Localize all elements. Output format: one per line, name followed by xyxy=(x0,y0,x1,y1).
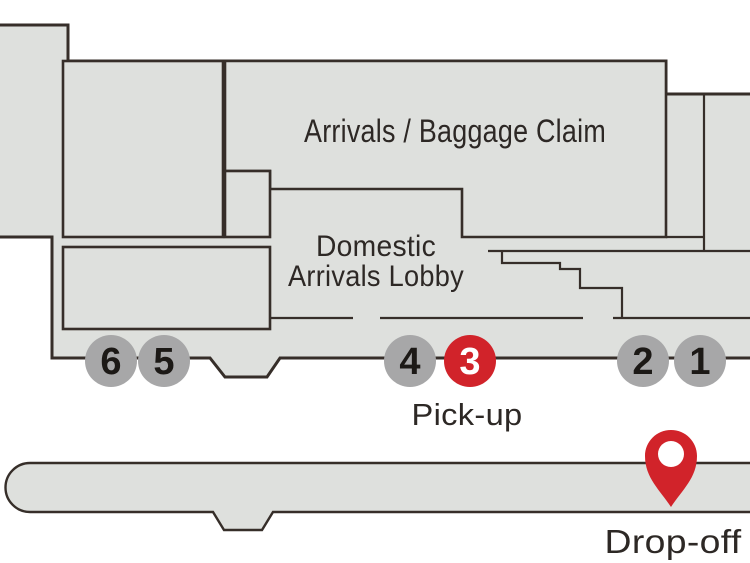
airport-terminal-map: Arrivals / Baggage Claim Domestic Arriva… xyxy=(0,0,750,563)
room-upper-left xyxy=(63,61,223,237)
pin-hole xyxy=(658,441,684,467)
dropoff-label: Drop-off xyxy=(605,523,743,560)
stop-6-number: 6 xyxy=(100,341,121,383)
stop-4: 4 xyxy=(384,335,436,387)
lobby-label-line-1: Domestic xyxy=(316,230,436,263)
lobby-label-line-2: Arrivals Lobby xyxy=(288,260,464,293)
stop-1: 1 xyxy=(674,335,726,387)
stop-2: 2 xyxy=(617,335,669,387)
stop-6: 6 xyxy=(85,335,137,387)
stop-1-number: 1 xyxy=(689,341,710,383)
baggage-claim-label: Arrivals / Baggage Claim xyxy=(304,113,606,149)
pickup-label: Pick-up xyxy=(412,397,523,432)
stop-3-pickup: 3 xyxy=(444,335,496,387)
stop-5: 5 xyxy=(138,335,190,387)
stop-5-number: 5 xyxy=(153,341,174,383)
room-small-annex xyxy=(225,171,270,237)
room-lower-left xyxy=(63,247,270,329)
airport-terminal-map-page: Arrivals / Baggage Claim Domestic Arriva… xyxy=(0,0,750,563)
roadway xyxy=(6,463,750,530)
stop-3-number: 3 xyxy=(459,341,480,383)
stop-4-number: 4 xyxy=(399,341,420,383)
stop-2-number: 2 xyxy=(632,341,653,383)
stop-markers: 6 5 4 3 2 1 xyxy=(85,335,726,387)
